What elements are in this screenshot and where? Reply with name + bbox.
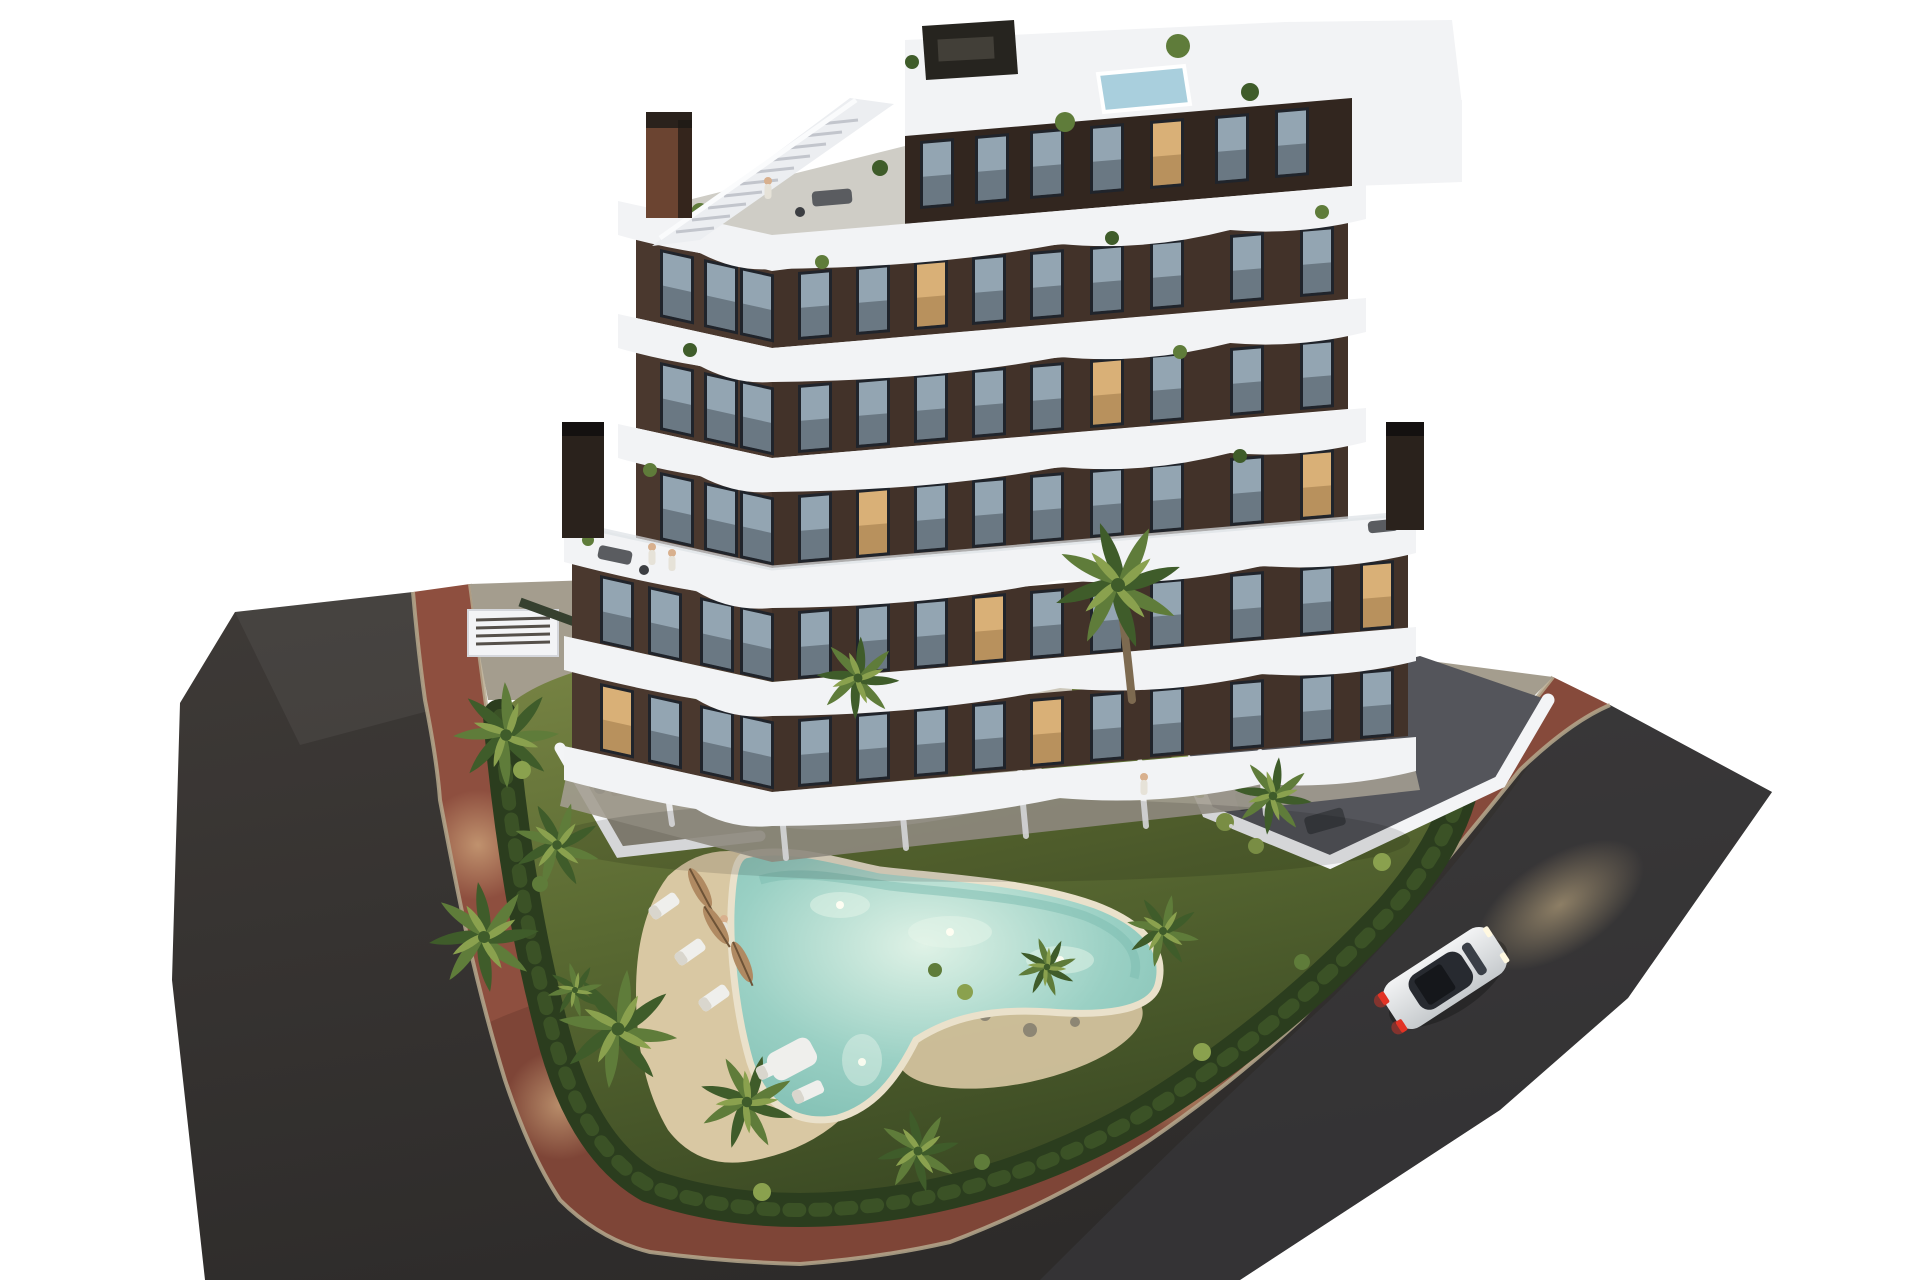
roof-tree (905, 55, 919, 69)
potted-plant (872, 160, 888, 176)
render-canvas (0, 0, 1920, 1280)
roof-tree (1166, 34, 1190, 58)
roof-tree (1241, 83, 1259, 101)
upper-right-balcony (1352, 95, 1462, 186)
rooftop-pool (1098, 66, 1190, 112)
roof-tree (1055, 112, 1075, 132)
architectural-render (0, 0, 1920, 1280)
